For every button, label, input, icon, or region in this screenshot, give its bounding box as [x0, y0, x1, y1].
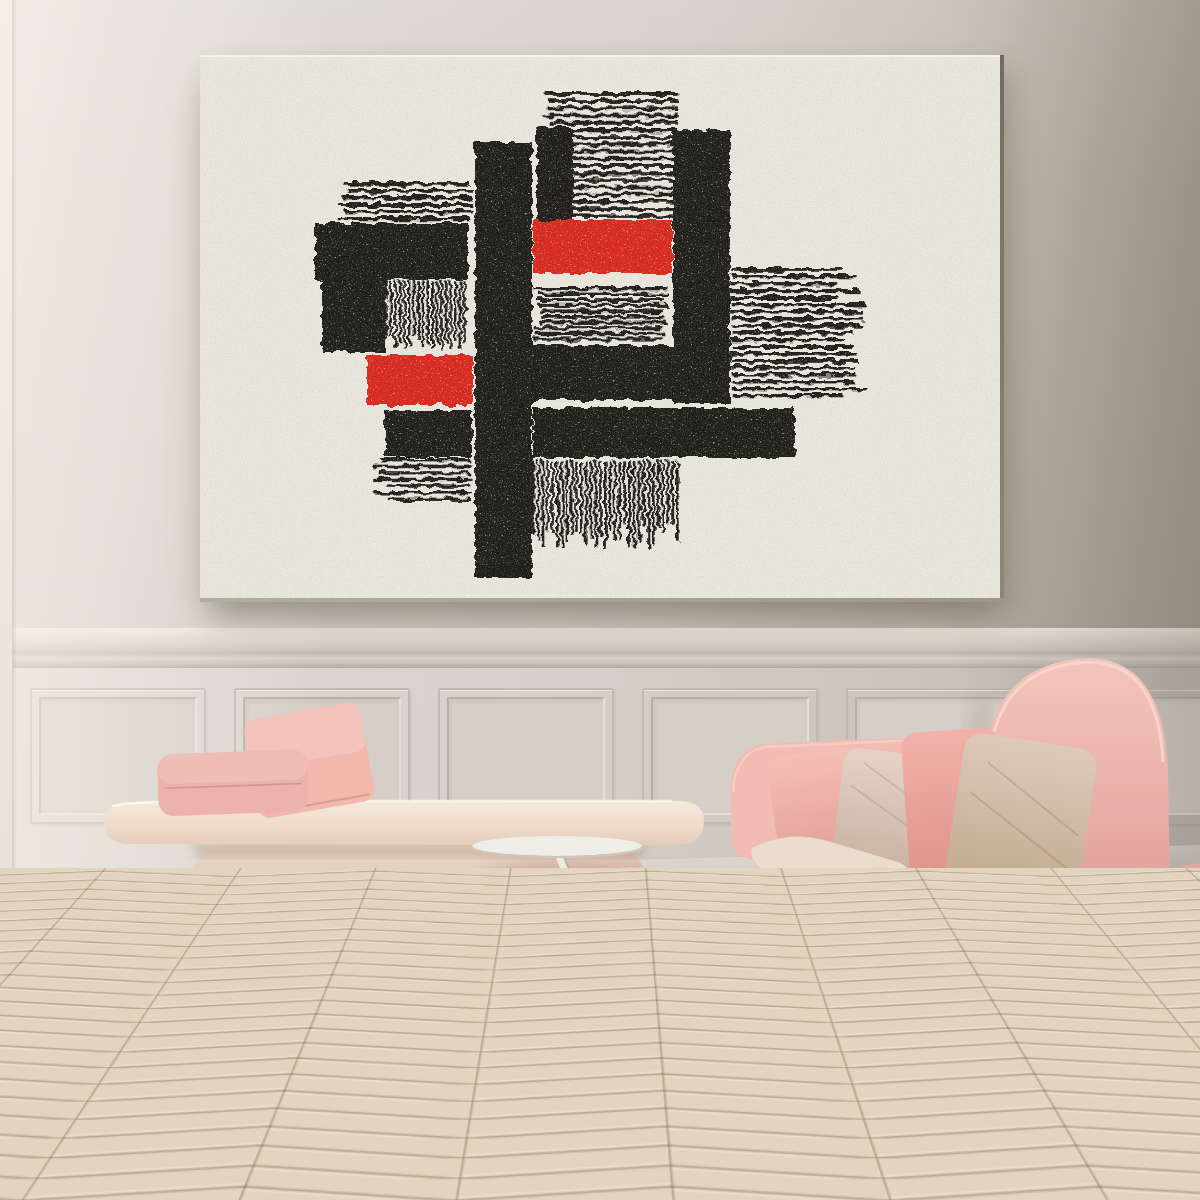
table-disc-top [472, 836, 642, 856]
furniture-layer [0, 0, 1200, 1200]
stool-stretcher [489, 1032, 577, 1036]
table-shadow-on-bench [457, 862, 647, 914]
sofa-floor-shadow [775, 1128, 1200, 1192]
leg-contact-shadow [1103, 1144, 1153, 1156]
bench-pillow-left [157, 749, 309, 816]
living-room-scene [0, 0, 1200, 1200]
blanket-twisted-tail [633, 1055, 672, 1079]
leg-contact-shadow [841, 1147, 887, 1158]
sofa-pillow-4-beige [939, 731, 1099, 928]
stool-leg-middle [535, 952, 540, 1057]
